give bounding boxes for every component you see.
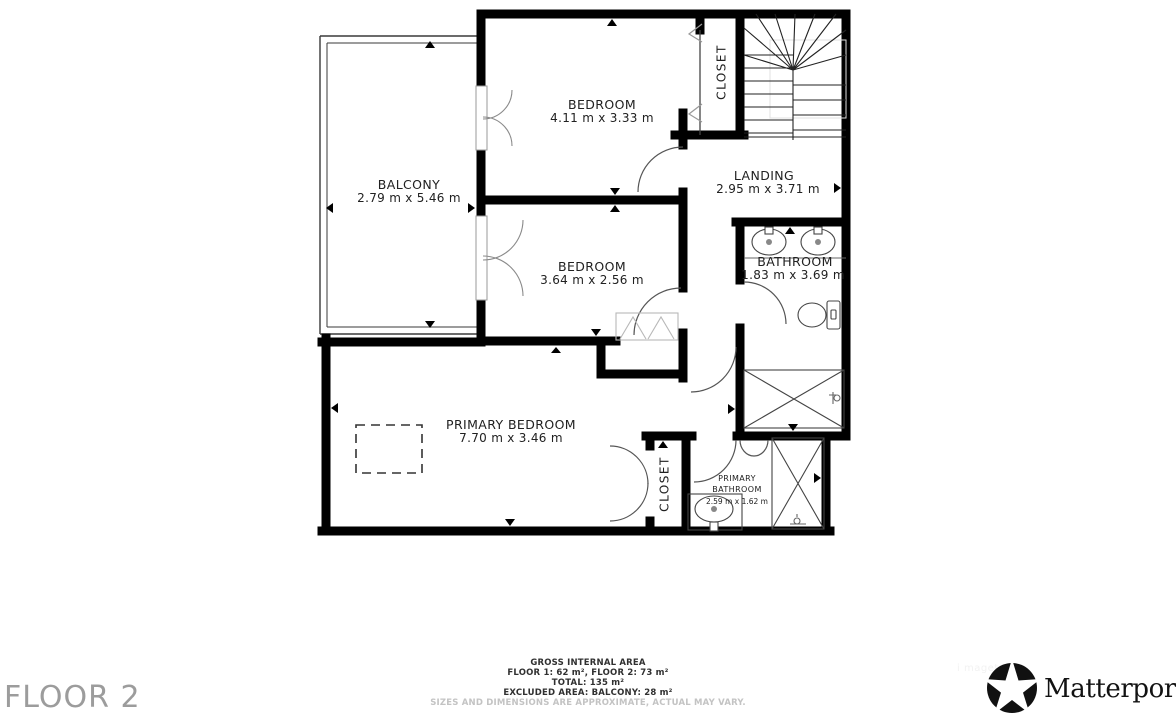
bedroom-middle-label: BEDROOM (558, 259, 626, 274)
primary-bathroom-label-2: BATHROOM (712, 485, 762, 494)
closet-top-doors (689, 24, 702, 135)
bedroom-top-label: BEDROOM (568, 97, 636, 112)
primary-bathroom-dims: 2.59 m x 1.62 m (706, 497, 768, 506)
primary-bedroom-dims: 7.70 m x 3.46 m (459, 431, 563, 445)
stairs-icon (744, 14, 846, 140)
matterport-wordmark: Matterport® (1044, 674, 1176, 704)
floor-plan-page: BALCONY 2.79 m x 5.46 m BEDROOM 4.11 m x… (0, 0, 1176, 720)
floor-label: FLOOR 2 (4, 680, 141, 715)
bedroom-middle-dims: 3.64 m x 2.56 m (540, 273, 644, 287)
landing-label: LANDING (734, 168, 794, 183)
primary-bathroom-label-1: PRIMARY (718, 474, 756, 483)
bedroom-middle-closet (616, 313, 678, 340)
floor-plan-drawing: BALCONY 2.79 m x 5.46 m BEDROOM 4.11 m x… (0, 0, 1176, 720)
shower-icon (744, 370, 844, 428)
balcony-label: BALCONY (378, 177, 440, 192)
sink-icon (801, 227, 835, 255)
matterport-pinwheel-icon (984, 658, 1040, 716)
landing-dims: 2.95 m x 3.71 m (716, 182, 820, 196)
door-arc-closet-lower (610, 483, 648, 521)
toilet-icon (798, 301, 840, 329)
bathroom-label: BATHROOM (757, 254, 833, 269)
bathroom-dims: 1.83 m x 3.69 m (741, 268, 845, 282)
primary-bedroom-label: PRIMARY BEDROOM (446, 417, 576, 432)
door-arc-bedroom-top (638, 147, 683, 192)
closet-top-label: CLOSET (715, 44, 729, 100)
dashed-area (356, 425, 422, 473)
shower-icon (772, 438, 824, 529)
door-arc-primary-bedroom (691, 347, 736, 392)
door-arc-closet-upper (610, 446, 648, 484)
bedroom-top-dims: 4.11 m x 3.33 m (550, 111, 654, 125)
sink-icon (752, 227, 786, 255)
door-arc-bedroom-middle (634, 288, 681, 335)
closet-bottom-label: CLOSET (658, 456, 672, 512)
door-leaf-primary-bathroom (740, 440, 768, 456)
door-arc-bathroom (744, 282, 786, 324)
balcony-dims: 2.79 m x 5.46 m (357, 191, 461, 205)
matterport-logo: Matterport® (984, 658, 1176, 718)
